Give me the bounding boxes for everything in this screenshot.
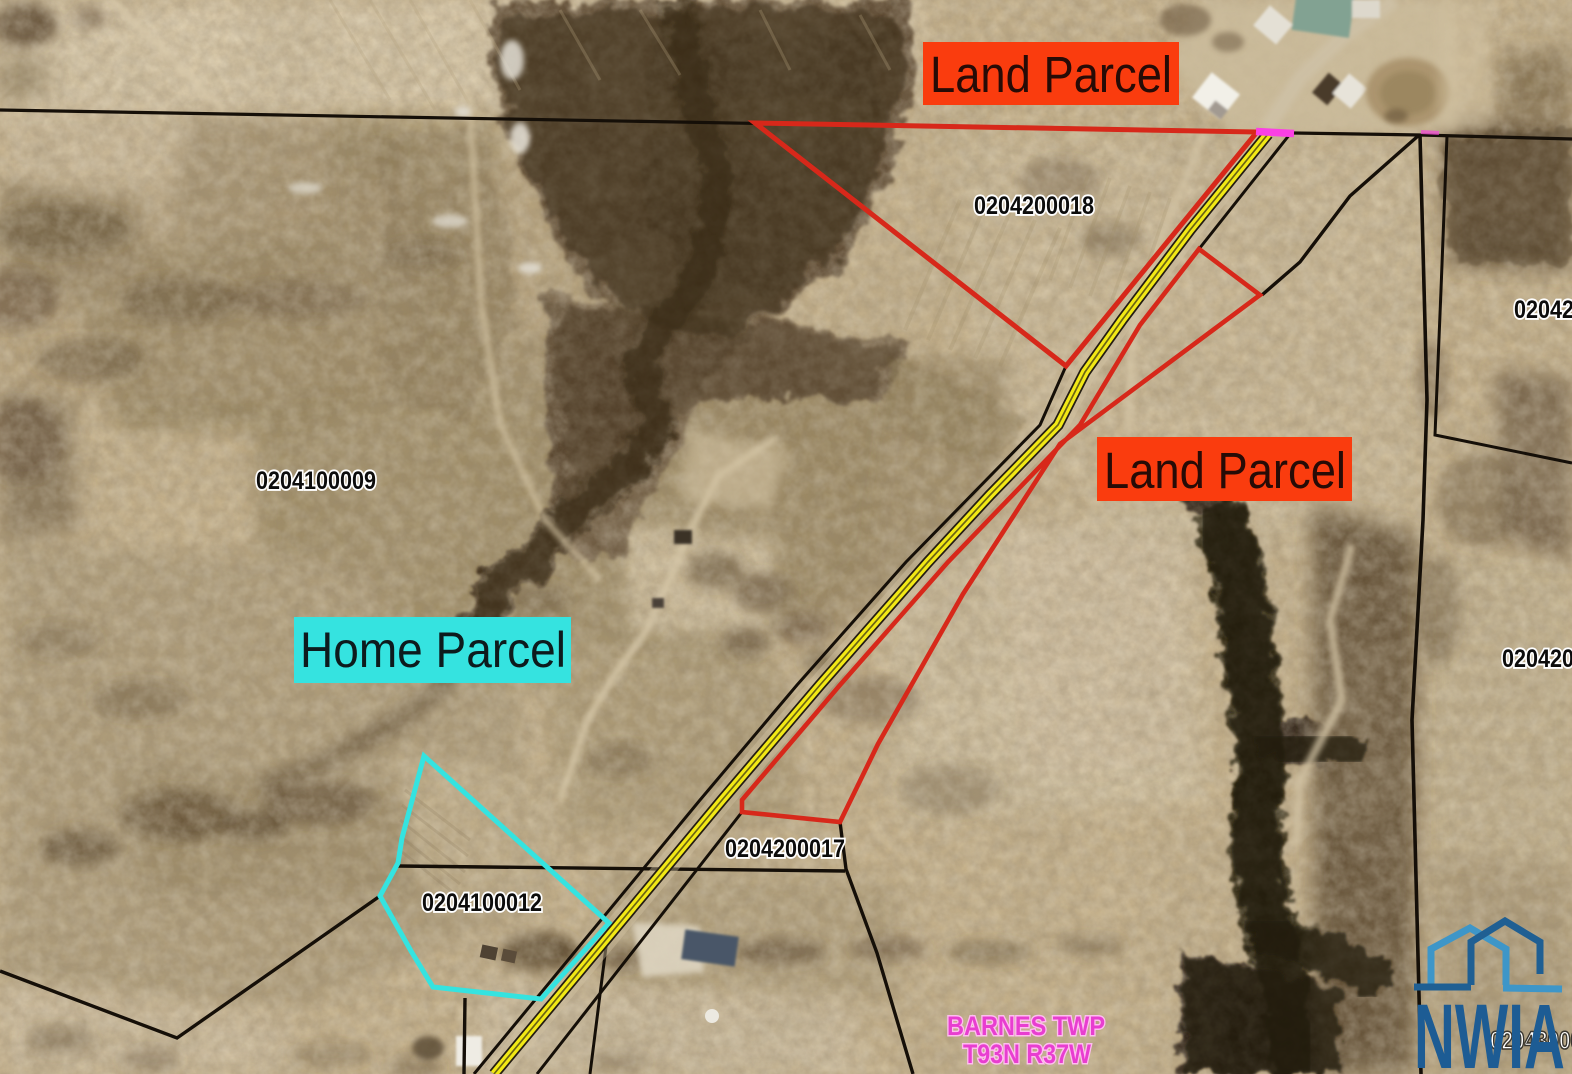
svg-text:BARNES TWP: BARNES TWP	[947, 1011, 1105, 1041]
svg-text:0204100009: 0204100009	[256, 467, 376, 495]
svg-text:0204100012: 0204100012	[422, 889, 542, 917]
svg-text:NWIA: NWIA	[1414, 986, 1565, 1074]
svg-text:Home Parcel: Home Parcel	[300, 622, 566, 678]
svg-text:Land Parcel: Land Parcel	[930, 46, 1172, 103]
svg-text:0204200018: 0204200018	[974, 192, 1094, 220]
svg-text:T93N R37W: T93N R37W	[963, 1039, 1091, 1069]
svg-text:Land Parcel: Land Parcel	[1104, 442, 1346, 499]
svg-text:0204200017: 0204200017	[725, 835, 845, 863]
svg-text:02042000: 02042000	[1502, 645, 1572, 673]
svg-text:02042000: 02042000	[1514, 296, 1572, 324]
